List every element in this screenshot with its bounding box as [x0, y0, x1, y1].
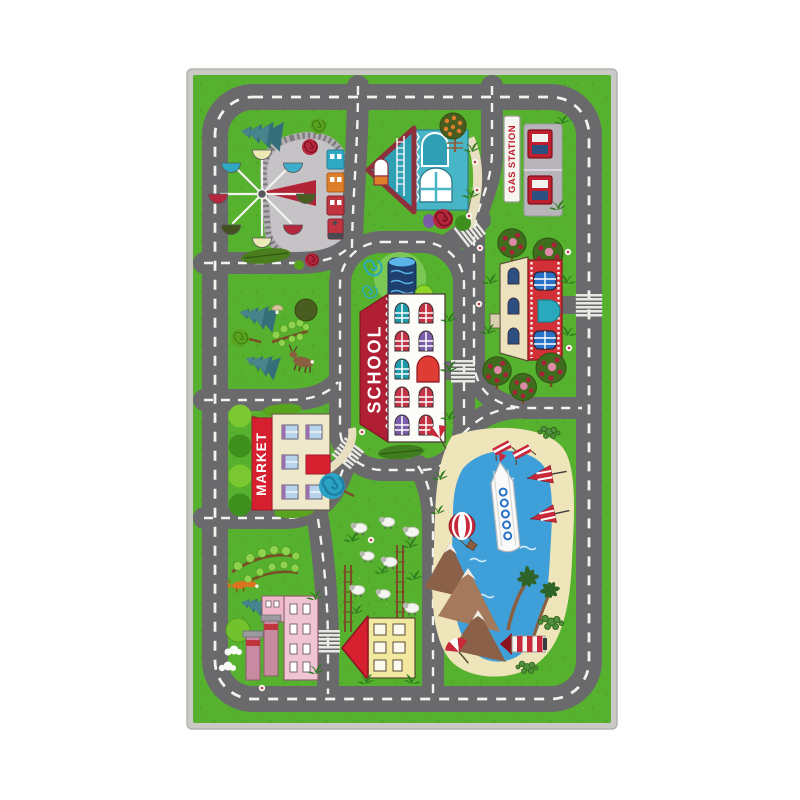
- school-door: [417, 356, 439, 382]
- fuel-pump: [528, 176, 552, 204]
- gas-station: GAS STATION: [504, 115, 569, 216]
- annex-windows: [508, 268, 519, 344]
- gas-station-sign: GAS STATION: [504, 116, 520, 202]
- school-building: SCHOOL: [360, 294, 458, 442]
- market-door: [306, 455, 330, 474]
- red-building: [490, 257, 562, 361]
- smoke-stack: [261, 615, 281, 676]
- red-building-door: [538, 300, 560, 322]
- gas-station-label: GAS STATION: [507, 125, 518, 193]
- school-label: SCHOOL: [364, 324, 384, 413]
- market-building: MARKET: [252, 414, 330, 510]
- rug-photo-svg: GAS STATION SCHOOL: [0, 0, 800, 800]
- smoke-stack: [243, 631, 263, 680]
- market-label: MARKET: [254, 432, 269, 496]
- product-photo: GAS STATION SCHOOL: [0, 0, 800, 800]
- lake-beach-cell: [424, 422, 574, 676]
- fuel-pump: [528, 130, 552, 158]
- ferris-hub: [258, 190, 267, 199]
- rug: GAS STATION SCHOOL: [187, 69, 617, 729]
